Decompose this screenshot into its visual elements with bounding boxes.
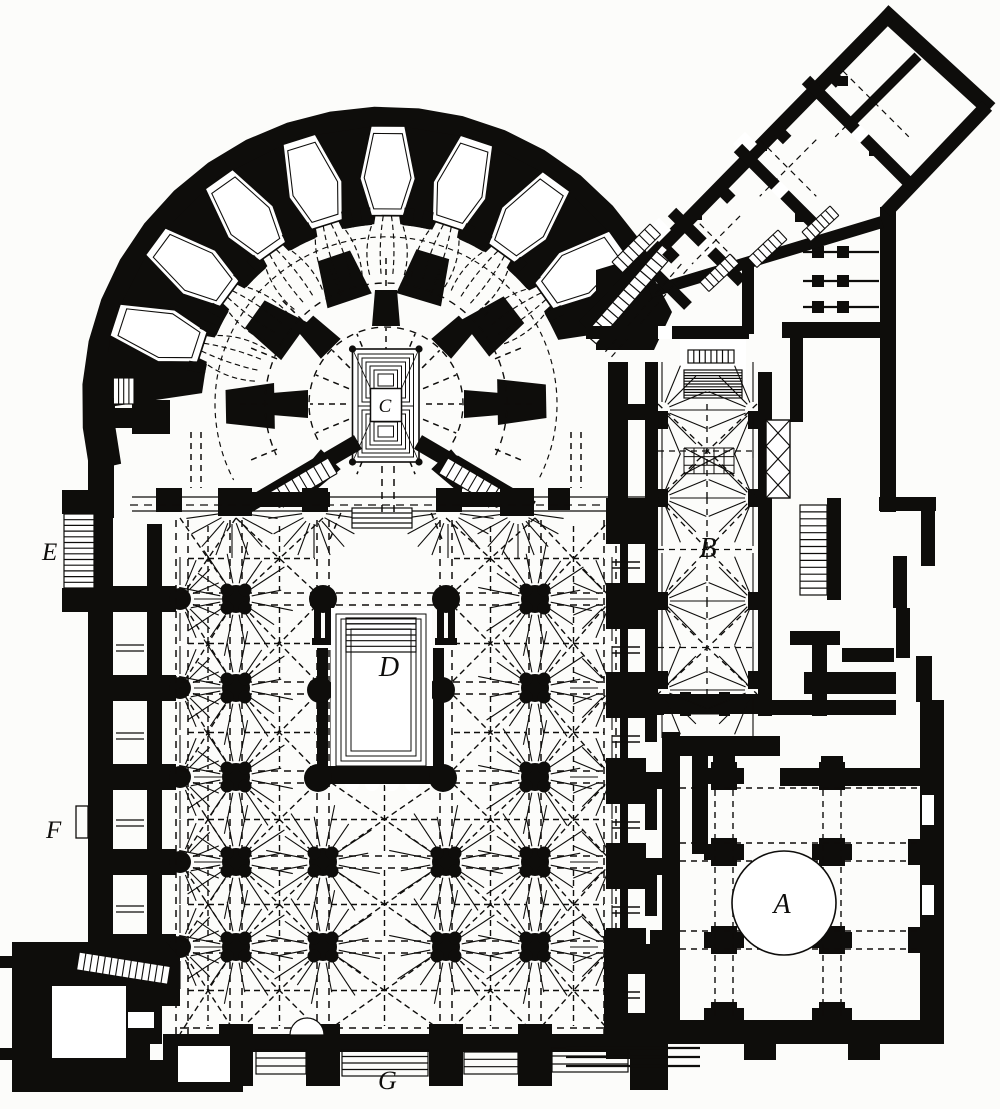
svg-text:B: B	[699, 533, 716, 564]
svg-text:G: G	[378, 1066, 397, 1095]
svg-text:A: A	[771, 889, 791, 920]
svg-text:C: C	[379, 396, 392, 417]
svg-text:E: E	[41, 539, 57, 566]
svg-text:F: F	[45, 817, 62, 844]
svg-text:D: D	[378, 652, 399, 683]
